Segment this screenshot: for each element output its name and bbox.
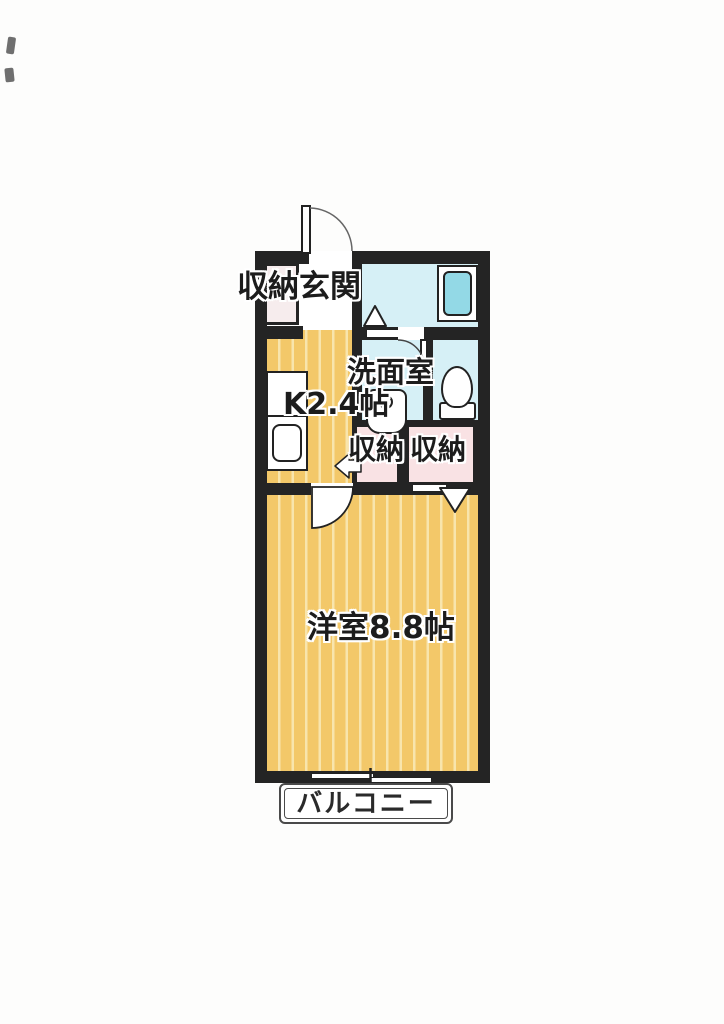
closet-door-threshold xyxy=(412,484,447,492)
toilet-bowl xyxy=(441,366,473,408)
balcony: バルコニー xyxy=(279,783,453,824)
entrance-door-swing-arc xyxy=(310,208,352,251)
balcony-label: バルコニー xyxy=(296,791,435,817)
entrance-door-opening xyxy=(309,251,352,264)
main-room-label: 洋室8.8帖 xyxy=(307,613,455,644)
entrance-label: 玄関 xyxy=(299,269,361,305)
entrance-closet-label: 収納 xyxy=(237,269,299,305)
closet-right-label: 収納 xyxy=(410,436,466,464)
sliding-window-right-pane xyxy=(370,777,432,783)
kitchen-label: K2.4帖 xyxy=(283,390,389,420)
scan-speck xyxy=(6,37,16,55)
room-door-opening xyxy=(311,483,353,495)
washroom-label: 洗面室 xyxy=(347,358,434,387)
entrance-area-label: 収納玄関 xyxy=(237,272,361,303)
sliding-window-left-pane xyxy=(311,773,374,779)
washroom-door-opening xyxy=(398,327,424,340)
entrance-door-panel xyxy=(302,206,310,253)
bathtub-inner xyxy=(443,271,472,316)
closet-left-label: 収納 xyxy=(348,436,404,464)
scanned-floorplan-page: { "title": "1K apartment floor plan", "l… xyxy=(0,0,724,1024)
scan-speck xyxy=(4,68,14,83)
kitchen-sink xyxy=(272,424,302,462)
wall-under-closet xyxy=(262,326,303,339)
